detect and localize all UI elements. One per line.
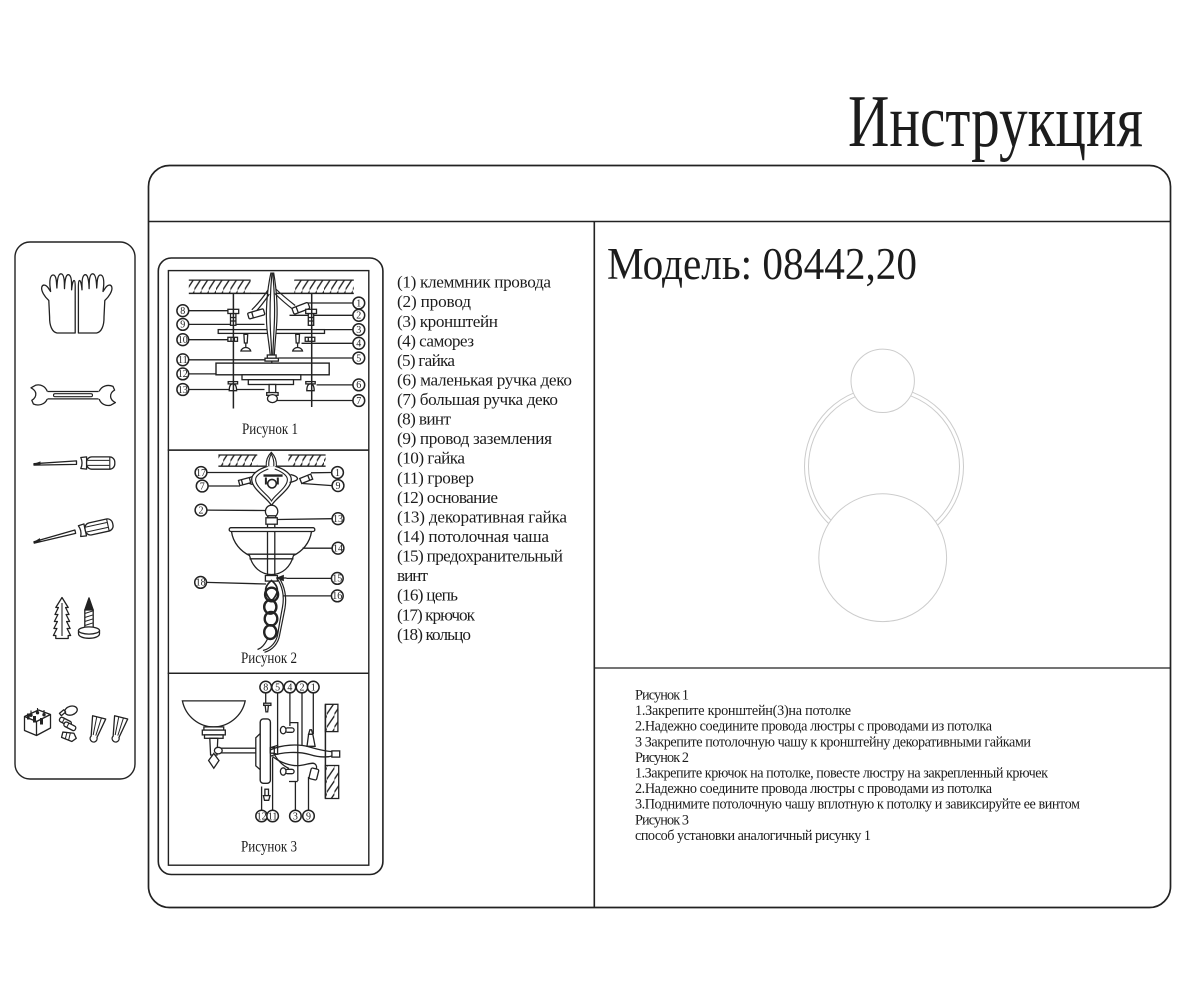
svg-text:(10) гайка: (10) гайка	[397, 449, 465, 468]
svg-text:18: 18	[196, 578, 206, 589]
svg-text:6: 6	[356, 380, 361, 391]
svg-text:Рисунок 3: Рисунок 3	[241, 837, 297, 856]
svg-text:14: 14	[333, 544, 343, 555]
svg-text:(16) цепь: (16) цепь	[397, 586, 458, 605]
svg-text:2: 2	[199, 505, 204, 516]
svg-text:Модель: 08442,20: Модель: 08442,20	[607, 239, 917, 289]
svg-text:Рисунок 2: Рисунок 2	[241, 648, 297, 667]
svg-text:(5) гайка: (5) гайка	[397, 351, 455, 370]
svg-text:9: 9	[306, 811, 311, 822]
svg-text:13: 13	[333, 514, 343, 525]
svg-text:(18) кольцо: (18) кольцо	[397, 625, 471, 644]
svg-text:7: 7	[356, 396, 361, 407]
svg-text:10: 10	[178, 335, 188, 346]
svg-text:15: 15	[332, 574, 342, 585]
svg-text:способ установки аналогичный р: способ установки аналогичный рисунку 1	[635, 828, 871, 844]
svg-text:5: 5	[356, 353, 361, 364]
svg-text:Рисунок 2: Рисунок 2	[635, 750, 689, 766]
svg-text:(12) основание: (12) основание	[397, 488, 498, 507]
svg-text:(1) клеммник провода: (1) клеммник провода	[397, 273, 551, 292]
svg-text:2.Надежно соедините провода лю: 2.Надежно соедините провода люстры с про…	[635, 719, 993, 735]
svg-text:3.Поднимите потолочную чашу вп: 3.Поднимите потолочную чашу вплотную к п…	[635, 797, 1080, 813]
svg-text:1: 1	[356, 298, 361, 309]
svg-text:(7) большая ручка деко: (7) большая ручка деко	[397, 390, 558, 409]
svg-text:Рисунок 1: Рисунок 1	[242, 419, 298, 438]
svg-text:11: 11	[268, 811, 278, 822]
svg-text:(13) декоративная гайка: (13) декоративная гайка	[397, 507, 567, 526]
svg-text:13: 13	[178, 385, 188, 396]
svg-text:4: 4	[287, 682, 292, 693]
svg-text:12: 12	[178, 369, 188, 380]
svg-text:4: 4	[356, 339, 361, 350]
svg-text:Инструкция: Инструкция	[848, 81, 1143, 163]
svg-text:(17) крючок: (17) крючок	[397, 605, 476, 624]
svg-text:11: 11	[178, 355, 188, 366]
svg-text:1: 1	[335, 468, 340, 479]
svg-text:(4) саморез: (4) саморез	[397, 331, 474, 350]
svg-text:12: 12	[257, 811, 267, 822]
svg-text:1.Закрепите кронштейн(3)на пот: 1.Закрепите кронштейн(3)на потолке	[635, 703, 851, 719]
svg-text:3 Закрепите потолочную чашу к: 3 Закрепите потолочную чашу к кронштейну…	[635, 734, 1031, 750]
svg-text:9: 9	[336, 481, 341, 492]
svg-text:2: 2	[300, 682, 305, 693]
svg-text:(6) маленькая ручка деко: (6) маленькая ручка деко	[397, 371, 572, 390]
svg-text:винт: винт	[397, 566, 428, 585]
svg-text:17: 17	[196, 468, 206, 479]
svg-text:1: 1	[311, 682, 316, 693]
svg-text:(14) потолочная чаша: (14) потолочная чаша	[397, 527, 549, 546]
svg-text:(11) гровер: (11) гровер	[397, 468, 474, 487]
svg-text:16: 16	[332, 591, 342, 602]
svg-text:9: 9	[180, 320, 185, 331]
svg-text:(3) кронштейн: (3) кронштейн	[397, 312, 498, 331]
svg-text:(15) предохранительный: (15) предохранительный	[397, 547, 563, 566]
svg-text:Рисунок 3: Рисунок 3	[635, 812, 689, 828]
svg-text:8: 8	[180, 306, 185, 317]
svg-text:3: 3	[356, 325, 361, 336]
svg-text:2.Надежно соедините провода лю: 2.Надежно соедините провода люстры с про…	[635, 781, 993, 797]
svg-text:8: 8	[263, 682, 268, 693]
svg-text:(8) винт: (8) винт	[397, 410, 451, 429]
svg-text:3: 3	[293, 811, 298, 822]
svg-text:7: 7	[200, 481, 205, 492]
svg-text:(2) провод: (2) провод	[397, 292, 471, 311]
svg-text:(9) провод заземления: (9) провод заземления	[397, 429, 552, 448]
svg-text:Рисунок 1: Рисунок 1	[635, 688, 689, 704]
svg-text:5: 5	[275, 682, 280, 693]
svg-text:1.Закрепите крючок на потолке,: 1.Закрепите крючок на потолке, повесте л…	[635, 766, 1048, 782]
svg-text:2: 2	[356, 311, 361, 322]
